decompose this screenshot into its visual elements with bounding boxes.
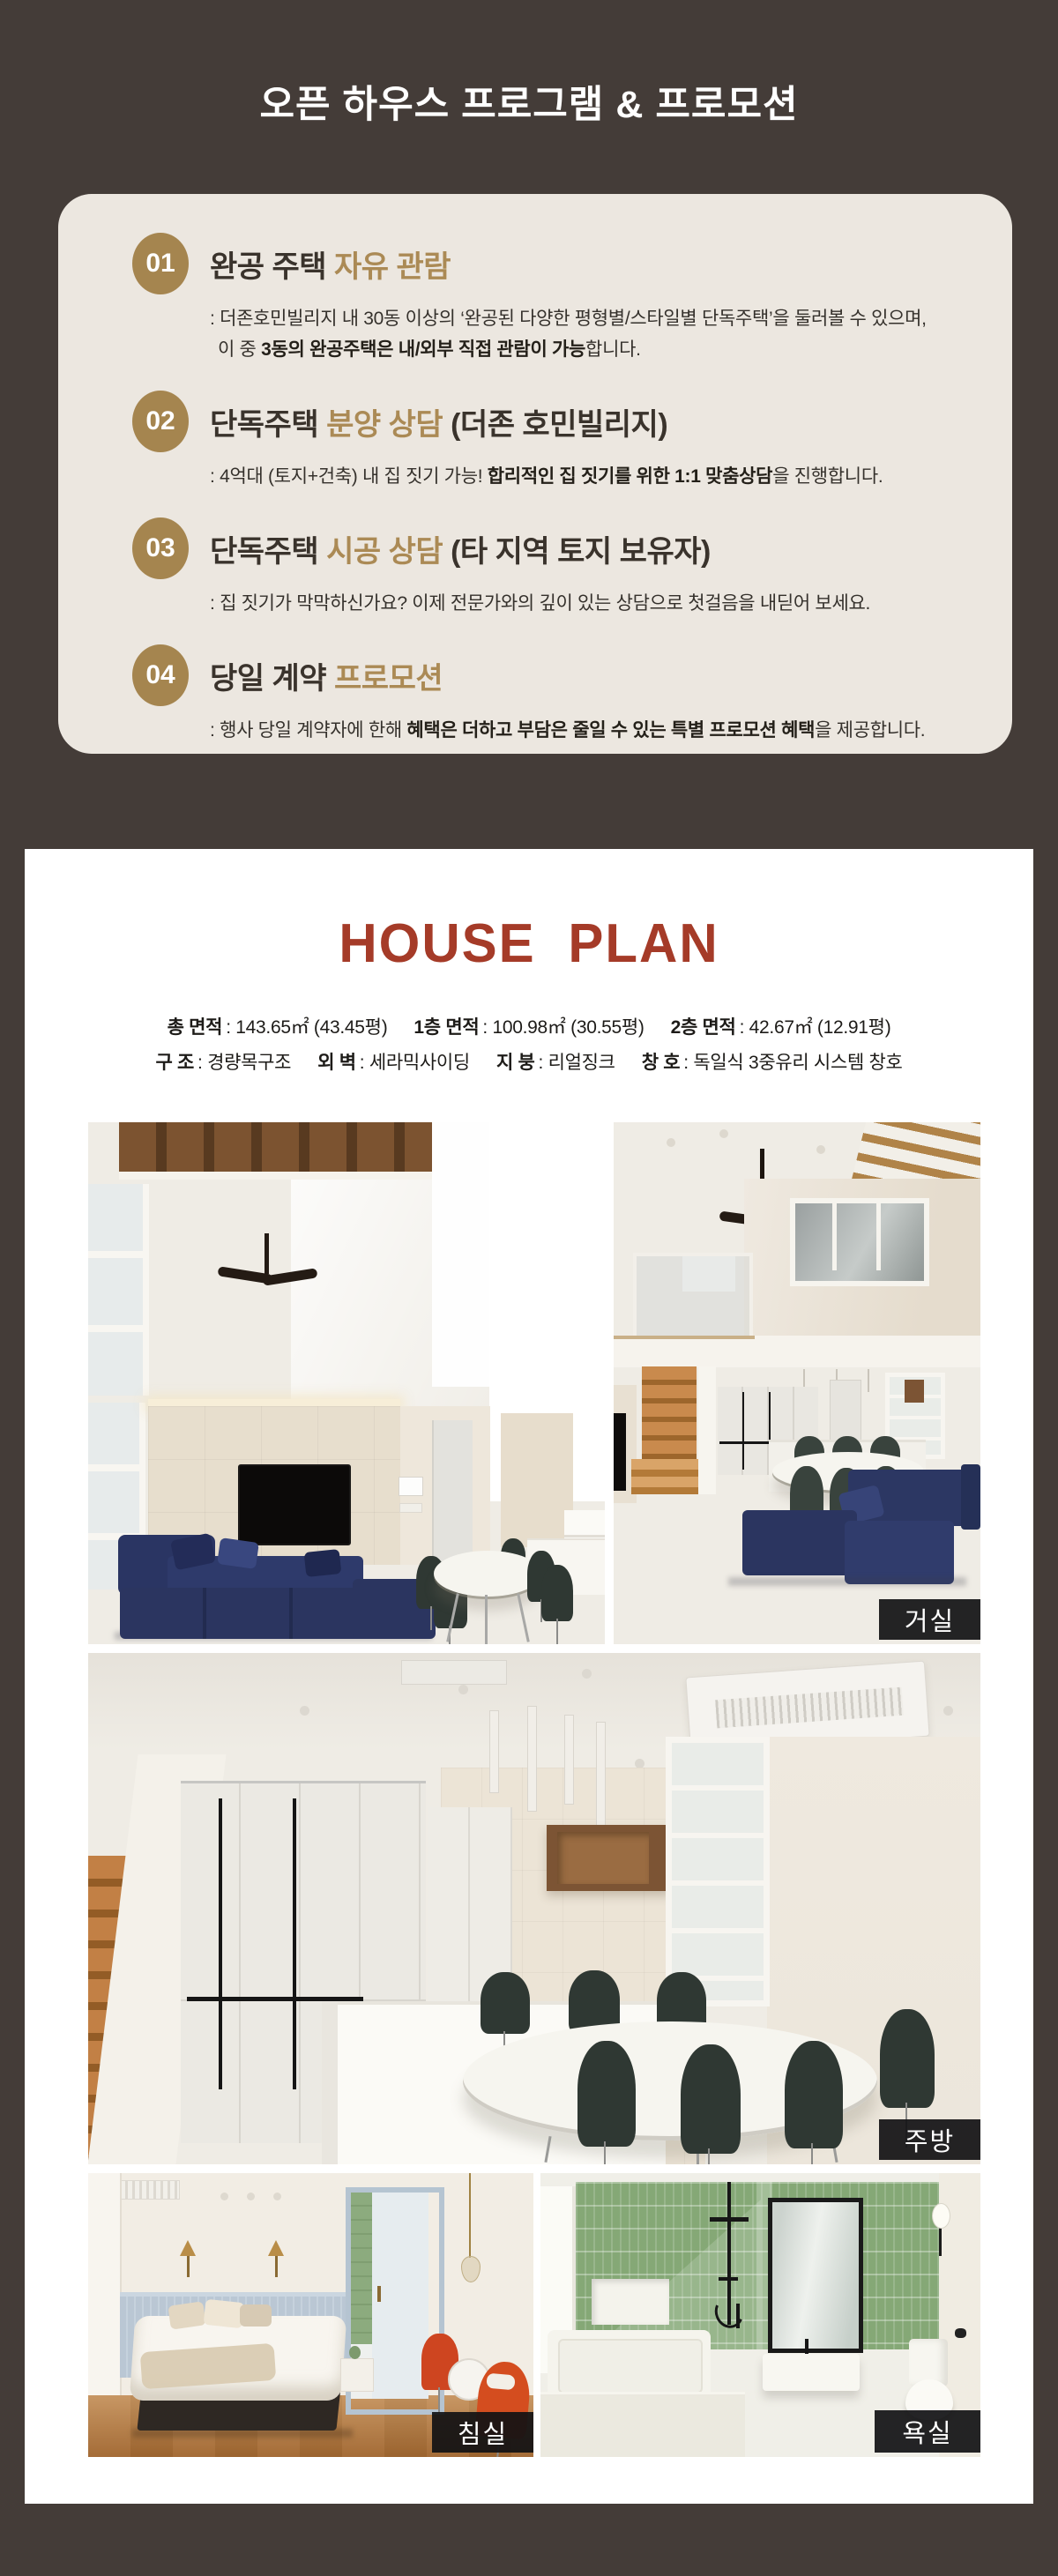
ceiling-vent (113, 2180, 180, 2200)
dining-chair (577, 2041, 636, 2147)
sofa-pillow (304, 1549, 342, 1577)
photo-label-bedroom: 침실 (432, 2412, 533, 2453)
cabinet-handle-line (219, 1798, 222, 2089)
number-badge: 02 (132, 391, 189, 452)
spec-total-area: 총 면적: 143.65㎡ (43.45평) (168, 1013, 388, 1039)
program-item-1: 01 완공 주택 자유 관람 : 더존호민빌리지 내 30동 이상의 ‘완공된 … (132, 233, 959, 365)
glass-railing (633, 1253, 753, 1343)
spotlight (582, 1669, 592, 1679)
spec-row-materials: 구 조: 경량목구조 외 벽: 세라믹사이딩 지 붕: 리얼징크 창 호: 독일… (25, 1048, 1033, 1075)
pillow (204, 2299, 245, 2328)
number-badge: 03 (132, 517, 189, 579)
sconce-stem (939, 2226, 942, 2256)
photo-label-kitchen: 주방 (879, 2119, 980, 2160)
spotlight (816, 1145, 825, 1154)
program-item-title: 단독주택 분양 상담 (더존 호민빌리지) (210, 400, 667, 443)
pendant-wire (868, 1369, 869, 1392)
pendant-wire (469, 2173, 471, 2258)
title-accent: 프로모션 (334, 662, 443, 696)
photo-label-living: 거실 (879, 1599, 980, 1640)
title-accent: 분양 상담 (326, 408, 443, 442)
mezzanine-wood-edge (614, 1336, 755, 1339)
chair-cushion (486, 2373, 515, 2391)
program-item-title: 당일 계약 프로모션 (210, 654, 443, 697)
cabinet-handle-line (742, 1392, 744, 1470)
floating-sink (763, 2354, 860, 2391)
dining-chair (541, 1565, 573, 1621)
pillow (168, 2301, 205, 2329)
pendant-tube (564, 1715, 574, 1805)
dining-table (434, 1551, 541, 1597)
dining-chair (681, 2044, 741, 2154)
sofa-arm (961, 1464, 980, 1530)
dining-chair (785, 2041, 843, 2148)
program-item-4: 04 당일 계약 프로모션 : 행사 당일 계약자에 한해 혜택은 더하고 부담… (132, 644, 959, 746)
upper-window (790, 1198, 929, 1286)
spotlight (719, 1129, 728, 1138)
spec-floor2-area: 2층 면적: 42.67㎡ (12.91평) (671, 1013, 891, 1039)
ceiling-vent (401, 1660, 507, 1685)
wood-shelf-inner (557, 1832, 649, 1884)
island-side-shade (322, 2001, 338, 2164)
window-mullion (832, 1203, 837, 1270)
spec-windows: 창 호: 독일식 3중유리 시스템 창호 (642, 1048, 903, 1075)
pendant-glass (461, 2256, 481, 2282)
footer-band (0, 2504, 1058, 2576)
door-handle (377, 2286, 381, 2302)
wall-pad (399, 1477, 423, 1496)
toilet-paper-holder (955, 2328, 966, 2338)
shower-niche (592, 2279, 669, 2325)
title-accent: 자유 관람 (334, 250, 451, 284)
shower-riser-pipe (727, 2182, 731, 2219)
program-item-desc: : 더존호민빌리지 내 30동 이상의 ‘완공된 다양한 평형별/스타일별 단독… (210, 303, 959, 334)
light-switch (399, 1503, 422, 1513)
handheld-shower (736, 2304, 740, 2328)
photo-bedroom: 침실 (88, 2173, 533, 2457)
tall-window-upper (88, 1184, 149, 1396)
spec-row-areas: 총 면적: 143.65㎡ (43.45평) 1층 면적: 100.98㎡ (3… (25, 1013, 1033, 1039)
promo-page: { "colors": { "background_brown": "#443c… (0, 0, 1058, 2576)
dining-chair (880, 2009, 935, 2108)
mezzanine-fascia (614, 1336, 980, 1367)
title-accent: 시공 상담 (326, 535, 443, 569)
pendant-tube (489, 1710, 499, 1793)
pendant-tube (596, 1722, 606, 1838)
spec-roof: 지 붕: 리얼징크 (496, 1048, 615, 1075)
stair-wall (698, 1366, 716, 1494)
photo-living-room-2: 거실 (614, 1122, 980, 1644)
ceiling-fan-stem (264, 1233, 269, 1274)
spotlight (943, 1706, 953, 1716)
spotlight (247, 2193, 255, 2200)
sofa-seats (120, 1588, 377, 1639)
house-plan-title: HOUSE PLAN (25, 912, 1033, 975)
tv-edge (614, 1413, 626, 1491)
far-tile-wall (501, 1413, 573, 1547)
wall-sconce-shade (180, 2240, 196, 2256)
bedside-table (340, 2358, 374, 2392)
house-plan-card: HOUSE PLAN 총 면적: 143.65㎡ (43.45평) 1층 면적:… (25, 849, 1033, 2504)
dining-chair (481, 1972, 530, 2034)
photo-label-bathroom: 욕실 (875, 2410, 980, 2453)
program-item-title: 단독주택 시공 상담 (타 지역 토지 보유자) (210, 527, 711, 570)
spec-floor1-area: 1층 면적: 100.98㎡ (30.55평) (414, 1013, 644, 1039)
title-main: 단독주택 (210, 408, 326, 442)
pendant-tube (527, 1706, 537, 1812)
title-main: 당일 계약 (210, 662, 334, 696)
sofa-shadow (728, 1577, 966, 1586)
program-item-desc: : 4억대 (토지+건축) 내 집 짓기 가능! 합리적인 집 짓기를 위한 1… (210, 461, 959, 492)
table-leg (485, 1595, 488, 1644)
wall-sconce-stem (275, 2254, 278, 2277)
number-badge: 04 (132, 644, 189, 706)
plant (349, 2346, 361, 2359)
left-wall-band (88, 2173, 122, 2395)
title-main: 완공 주택 (210, 250, 334, 284)
mirror (768, 2198, 863, 2353)
program-item-2: 02 단독주택 분양 상담 (더존 호민빌리지) : 4억대 (토지+건축) 내… (132, 391, 959, 492)
spotlight (220, 2193, 228, 2200)
photo-grid: 거실 (88, 1122, 980, 2457)
wall-sconce-stem (187, 2254, 190, 2277)
spotlight (300, 1706, 309, 1716)
spotlight (458, 1685, 468, 1694)
table-leg (517, 1593, 530, 1642)
sofa-pillow (217, 1537, 259, 1569)
spec-exterior-wall: 외 벽: 세라믹사이딩 (317, 1048, 470, 1075)
program-card: 01 완공 주택 자유 관람 : 더존호민빌리지 내 30동 이상의 ‘완공된 … (58, 194, 1012, 754)
photo-kitchen: 주방 (88, 1653, 980, 2164)
sofa-seat (742, 1510, 857, 1575)
spotlight (273, 2193, 281, 2200)
wall-sconce-shade (268, 2240, 284, 2256)
wood-shelf-box (905, 1380, 924, 1403)
pillow (240, 2304, 272, 2327)
sconce-shade (932, 2203, 950, 2229)
bathtub-step (540, 2392, 745, 2457)
title-main: 단독주택 (210, 535, 326, 569)
glass-partition (666, 1737, 770, 2006)
number-badge: 01 (132, 233, 189, 294)
tv-screen (238, 1464, 351, 1545)
program-item-3: 03 단독주택 시공 상담 (타 지역 토지 보유자) : 집 짓기가 막막하신… (132, 517, 959, 619)
photo-bathroom: 욕실 (540, 2173, 980, 2457)
program-item-desc: : 집 짓기가 막막하신가요? 이제 전문가와의 깊이 있는 상담으로 첫걸음을… (210, 588, 959, 619)
title-suffix: (더존 호민빌리지) (443, 408, 667, 442)
program-item-desc: : 행사 당일 계약자에 한해 혜택은 더하고 부담은 줄일 수 있는 특별 프… (210, 715, 959, 746)
spec-structure: 구 조: 경량목구조 (155, 1048, 291, 1075)
photo-living-room-1 (88, 1122, 605, 1644)
window-mullion (876, 1203, 881, 1270)
spotlight (667, 1138, 675, 1147)
page-title: 오픈 하우스 프로그램 & 프로모션 (0, 74, 1058, 129)
cabinet-handle-line (293, 1798, 296, 2089)
sofa-seat (845, 1521, 954, 1584)
program-item-desc-line2: 이 중 3동의 완공주택은 내/외부 직접 관람이 가능합니다. (210, 334, 959, 365)
shower-handle (719, 2277, 738, 2281)
bathtub-inner (558, 2339, 703, 2394)
title-suffix: (타 지역 토지 보유자) (443, 535, 711, 569)
program-item-title: 완공 주택 자유 관람 (210, 242, 451, 286)
